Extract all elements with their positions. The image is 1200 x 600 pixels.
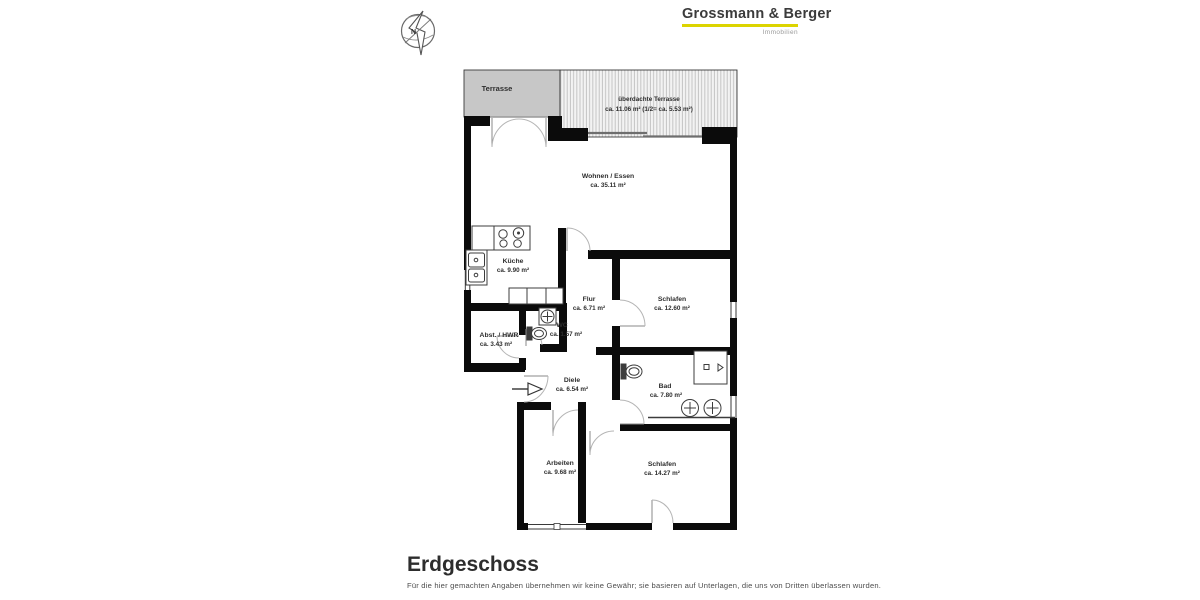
room-area-flur: ca. 6.71 m² [573, 305, 605, 312]
covered-terrace-area [560, 70, 737, 137]
door-arbeiten [553, 410, 578, 436]
floor-plan-svg: Terrasse überdachte Terrasse ca. 11.06 m… [0, 0, 1200, 600]
washing-machine-icon [539, 308, 556, 325]
stove-icon [494, 226, 530, 250]
shower-icon [694, 351, 727, 384]
room-label-covered-terrace: überdachte Terrasse [618, 96, 680, 103]
room-label-kueche: Küche [503, 258, 524, 265]
floorplan-page: N Grossmann & Berger Immobilien [0, 0, 1200, 600]
terrasse-area [464, 70, 560, 117]
room-label-schlafen1: Schlafen [658, 296, 686, 303]
window-bath-right [731, 396, 736, 418]
entrance-arrow-icon [512, 383, 542, 395]
room-area-abst: ca. 3.43 m² [480, 341, 512, 348]
room-label-diele: Diele [564, 377, 580, 384]
room-label-terrasse: Terrasse [482, 84, 513, 93]
room-area-bad: ca. 7.80 m² [650, 392, 682, 399]
kitchen-counter-icon [472, 226, 494, 250]
terrace-areas [464, 70, 737, 137]
window-bedroom1-right [731, 302, 736, 318]
door-garden [652, 500, 673, 523]
french-door [490, 117, 548, 147]
kitchen-lower-counter-icon [509, 288, 563, 304]
kitchen-fixtures [466, 226, 563, 304]
toilet-icon [621, 364, 642, 379]
washbasin-icon [648, 400, 735, 418]
door-bad [620, 400, 644, 424]
room-area-wohnen: ca. 35.11 m² [590, 182, 625, 189]
room-area-arbeiten: ca. 9.68 m² [544, 469, 576, 476]
room-area-schlafen1: ca. 12.60 m² [654, 305, 690, 312]
window-bottom-arbeiten [528, 524, 586, 530]
room-label-flur: Flur [583, 296, 596, 303]
toilet-icon [527, 327, 547, 340]
floor-title: Erdgeschoss [407, 553, 539, 577]
room-area-covered-terrace: ca. 11.06 m² (1/2= ca. 5.53 m²) [605, 106, 693, 113]
room-area-kueche: ca. 9.90 m² [497, 267, 529, 274]
room-label-bad: Bad [659, 383, 672, 390]
room-label-wc: WC [556, 322, 567, 329]
room-area-wc: ca. 1.57 m² [550, 331, 582, 338]
room-area-schlafen2: ca. 14.27 m² [644, 470, 680, 477]
room-label-arbeiten: Arbeiten [546, 460, 574, 467]
door-wohnen-flur [567, 228, 590, 251]
floor-disclaimer: Für die hier gemachten Angaben übernehme… [407, 581, 881, 590]
room-label-wohnen: Wohnen / Essen [582, 173, 634, 180]
door-flur-schlafen1 [620, 300, 645, 326]
room-area-diele: ca. 6.54 m² [556, 386, 588, 393]
room-label-abst: Abst. / HWR [480, 332, 519, 339]
kitchen-sink-icon [466, 250, 487, 285]
door-schlafen2 [590, 431, 614, 455]
room-label-schlafen2: Schlafen [648, 461, 676, 468]
